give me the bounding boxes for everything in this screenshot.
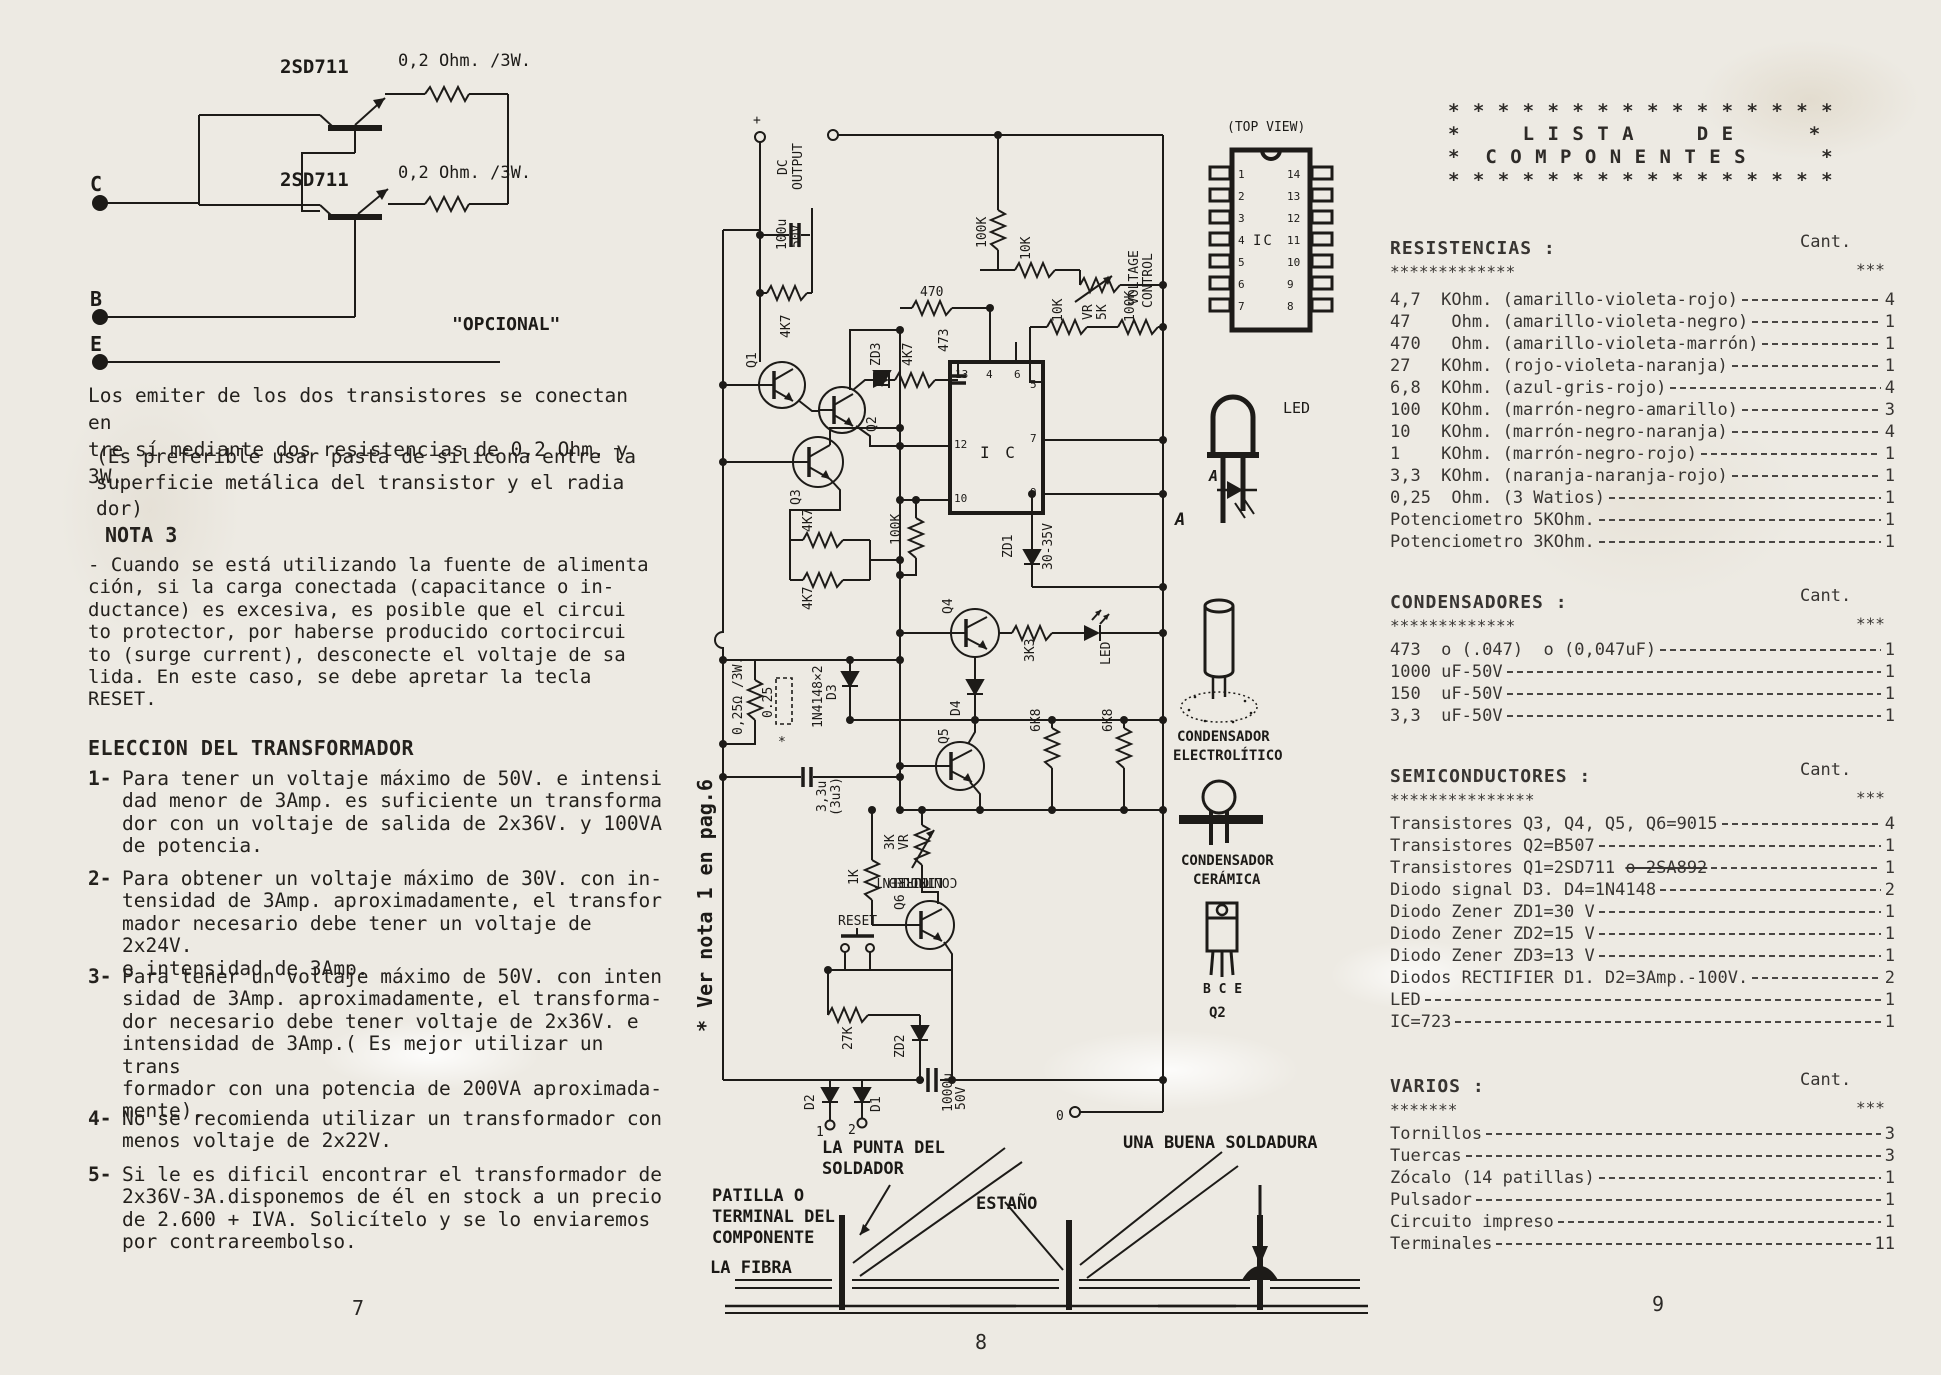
leader-dashes <box>1425 999 1881 1001</box>
resistor-10k-label: 10K <box>1019 236 1034 260</box>
cant-column-label: Cant. <box>1800 586 1851 606</box>
transistor-bottom-label: 2SD711 <box>280 169 349 191</box>
component-pictograms: (TOP VIEW) 1 2 3 4 5 6 7 14 13 12 11 10 <box>1165 85 1380 1045</box>
item-qty: 1 <box>1885 706 1895 726</box>
item-label: Zócalo (14 patillas) <box>1390 1168 1595 1188</box>
item-qty: 1 <box>1885 946 1895 966</box>
item-qty: 1 <box>1885 684 1895 704</box>
cap-50v-label: 50V <box>789 224 804 248</box>
leader-dashes <box>1609 497 1881 499</box>
item-qty: 4 <box>1885 814 1895 834</box>
semiconductor-item-q1: Transistores Q1=2SD711 o 2SA8921 <box>1390 858 1895 878</box>
electrolytic-cap-drawing <box>1181 600 1257 723</box>
d4-label: D4 <box>949 700 964 716</box>
leader-dashes <box>1670 387 1880 389</box>
semiconductor-item: Diodo Zener ZD2=15 V1 <box>1390 924 1895 944</box>
resistor-6k8-b-label: 6K8 <box>1101 709 1116 732</box>
item-label: Diodo Zener ZD3=13 V <box>1390 946 1595 966</box>
zd1-voltage-label: 30-35V <box>1041 523 1056 570</box>
led-label: LED <box>1099 641 1114 665</box>
ic-pin-12: 12 <box>954 438 967 451</box>
leader-dashes <box>1701 453 1881 455</box>
ic-pin-10: 10 <box>954 492 967 505</box>
leader-dashes <box>1599 541 1881 543</box>
soldering-diagram-3 <box>1158 1185 1368 1313</box>
item-qty: 1 <box>1885 356 1895 376</box>
d2-label: D2 <box>803 1094 818 1110</box>
section-underline: ************* <box>1390 262 1515 281</box>
dip-ic-label: IC <box>1253 233 1274 249</box>
ic-pin-7: 7 <box>1030 432 1037 445</box>
varios-item: Zócalo (14 patillas)1 <box>1390 1168 1895 1188</box>
varios-item: Tuercas3 <box>1390 1146 1895 1166</box>
ceramic-cap-drawing <box>1179 781 1263 845</box>
section-title-condensadores: CONDENSADORES : <box>1390 592 1568 613</box>
led-symbol-anode-label: A <box>1208 467 1218 485</box>
cant-column-label: Cant. <box>1800 760 1851 780</box>
voltage-control-label: CONTROL <box>1141 253 1156 308</box>
item-label: 473 o (.047) o (0,047uF) <box>1390 640 1656 660</box>
item-label: 1000 uF-50V <box>1390 662 1503 682</box>
resistor-item: Potenciometro 5KOhm.1 <box>1390 510 1895 530</box>
leader-dashes <box>1455 1021 1880 1023</box>
resistor-item: 4,7 KOhm. (amarillo-violeta-rojo)4 <box>1390 290 1895 310</box>
resistor-025-label: 0,25Ω /3W. <box>731 657 746 735</box>
leader-dashes <box>1558 1221 1881 1223</box>
cap-1000u-50v-label: 50V <box>954 1086 969 1110</box>
item-qty: 2 <box>1885 880 1895 900</box>
vr-5k-label: 5K <box>1095 304 1110 320</box>
item-label: Pulsador <box>1390 1190 1472 1210</box>
leader-dashes <box>1599 845 1881 847</box>
item-label: Transistores Q1=2SD711 <box>1390 858 1625 878</box>
resistor-item: 470 Ohm. (amarillo-violeta-marrón)1 <box>1390 334 1895 354</box>
leader-dashes <box>1732 431 1881 433</box>
semiconductor-item: Diodos RECTIFIER D1. D2=3Amp.-100V.2 <box>1390 968 1895 988</box>
item-label: Diodo signal D3. D4=1N4148 <box>1390 880 1656 900</box>
item-label: 150 uF-50V <box>1390 684 1503 704</box>
cant-stars: *** <box>1856 788 1885 807</box>
resistor-100k-label: 100K <box>975 217 990 248</box>
d3-label: D3 <box>825 684 840 700</box>
resistor-6k8-a-label: 6K8 <box>1029 709 1044 732</box>
ic-pin-6: 6 <box>1014 368 1021 381</box>
item-number: 5- <box>88 1164 122 1254</box>
cap-3u3-label: (3u3) <box>829 777 844 816</box>
zd1-label: ZD1 <box>1001 535 1016 558</box>
dip-pin-1: 1 <box>1238 168 1245 181</box>
circuit-wires <box>92 87 508 370</box>
item-label: 470 Ohm. (amarillo-violeta-marrón) <box>1390 334 1758 354</box>
plus-terminal-label: + <box>753 113 761 128</box>
leader-dashes <box>1722 823 1881 825</box>
leader-dashes <box>1507 715 1881 717</box>
transistor-top-label: 2SD711 <box>280 56 349 78</box>
ceramic-label-2: CERÁMICA <box>1193 871 1261 888</box>
terminal-0-label: 0 <box>1056 1109 1064 1124</box>
resistor-item: 10 KOhm. (marrón-negro-naranja)4 <box>1390 422 1895 442</box>
resistor-top-label: 0,2 Ohm. /3W. <box>398 51 531 71</box>
item-label: Diodo Zener ZD1=30 V <box>1390 902 1595 922</box>
to220-q2-label: Q2 <box>1209 1005 1226 1021</box>
item-qty: 1 <box>1885 510 1895 530</box>
zd3-label: ZD3 <box>869 343 884 366</box>
resistor-100k-b-label: 100K <box>1123 291 1138 322</box>
resistor-025b-label: 0.25 <box>761 687 776 718</box>
terminal-b-label: B <box>90 287 102 311</box>
reset-label: RESET <box>838 914 877 929</box>
electrolytic-label-2: ELECTROLÍTICO <box>1173 747 1283 764</box>
item-label: 6,8 KOhm. (azul-gris-rojo) <box>1390 378 1666 398</box>
semiconductor-item: Transistores Q2=B5071 <box>1390 836 1895 856</box>
item-label: 10 KOhm. (marrón-negro-naranja) <box>1390 422 1728 442</box>
item-qty: 3 <box>1885 1146 1895 1166</box>
item-label: 1 KOhm. (marrón-negro-rojo) <box>1390 444 1697 464</box>
dip-pin-3: 3 <box>1238 212 1245 225</box>
item-label: 27 KOhm. (rojo-violeta-naranja) <box>1390 356 1728 376</box>
resistor-item: 47 Ohm. (amarillo-violeta-negro)1 <box>1390 312 1895 332</box>
item-qty: 1 <box>1885 1212 1895 1232</box>
cap-3u3-label: 3,3u <box>815 781 830 812</box>
page-number-9: 9 <box>1652 1292 1664 1316</box>
resistor-item: 0,25 Ohm. (3 Watios)1 <box>1390 488 1895 508</box>
resistor-bottom-label: 0,2 Ohm. /3W. <box>398 163 531 183</box>
ic-pin-5: 5 <box>1030 378 1037 391</box>
top-view-label: (TOP VIEW) <box>1227 120 1305 135</box>
varios-item: Pulsador1 <box>1390 1190 1895 1210</box>
capacitor-item: 1000 uF-50V1 <box>1390 662 1895 682</box>
item-number: 1- <box>88 768 122 858</box>
item-qty: 1 <box>1885 662 1895 682</box>
dip-pin-12: 12 <box>1287 212 1300 225</box>
dc-output-label: DC <box>776 159 791 175</box>
led-anode-label: A <box>1174 510 1185 530</box>
dip14-ic-drawing: 1 2 3 4 5 6 7 14 13 12 11 10 9 8 IC <box>1210 150 1332 330</box>
item-label: Transistores Q3, Q4, Q5, Q6=9015 <box>1390 814 1718 834</box>
resistor-item: 3,3 KOhm. (naranja-naranja-rojo)1 <box>1390 466 1895 486</box>
item-label: 3,3 KOhm. (naranja-naranja-rojo) <box>1390 466 1728 486</box>
dip-pin-4: 4 <box>1238 234 1245 247</box>
item-qty: 3 <box>1885 400 1895 420</box>
cant-stars: *** <box>1856 1098 1885 1117</box>
semiconductor-item: Diodo signal D3. D4=1N41482 <box>1390 880 1895 900</box>
main-schematic: + DC OUTPUT 100u 50V 4K7 Q1 Q2 ZD3 4K7 4… <box>560 80 1180 1140</box>
item-qty: 1 <box>1885 488 1895 508</box>
item-label: Potenciometro 3KOhm. <box>1390 532 1595 552</box>
section-underline: ******* <box>1390 1100 1457 1119</box>
to220-transistor-drawing <box>1207 903 1237 977</box>
section-underline: ************* <box>1390 616 1515 635</box>
dip-pin-5: 5 <box>1238 256 1245 269</box>
ic-pin-13: 13 <box>955 368 968 381</box>
item-label: 47 Ohm. (amarillo-violeta-negro) <box>1390 312 1748 332</box>
item-qty: 1 <box>1885 902 1895 922</box>
q1-label: Q1 <box>745 352 760 368</box>
dip-pin-7: 7 <box>1238 300 1245 313</box>
cap-473-label: 473 <box>937 329 952 352</box>
item-number: 2- <box>88 868 122 980</box>
item-label: Diodos RECTIFIER D1. D2=3Amp.-100V. <box>1390 968 1748 988</box>
leader-dashes <box>1752 977 1881 979</box>
q2-label: Q2 <box>865 416 880 432</box>
item-qty: 1 <box>1885 640 1895 660</box>
item-qty: 1 <box>1885 924 1895 944</box>
leader-dashes <box>1660 649 1881 651</box>
section-title-resistencias: RESISTENCIAS : <box>1390 238 1556 259</box>
terminal-e-label: E <box>90 332 102 356</box>
q1-base-bar <box>328 125 382 131</box>
leader-dashes <box>1599 933 1881 935</box>
asterisk-mark: * <box>778 735 786 750</box>
electrolytic-label-1: CONDENSADOR <box>1177 729 1270 745</box>
leader-dashes <box>1742 299 1881 301</box>
resistor-4k7-b-label: 4K7 <box>801 587 816 610</box>
capacitor-item: 150 uF-50V1 <box>1390 684 1895 704</box>
leader-dashes <box>1599 955 1881 957</box>
item-label: Diodo Zener ZD2=15 V <box>1390 924 1595 944</box>
item-qty: 1 <box>1885 1190 1895 1210</box>
q5-label: Q5 <box>937 728 952 744</box>
scanned-manual-page: { "left_column": { "circuit": { "q_top":… <box>0 0 1941 1375</box>
leader-dashes <box>1732 475 1881 477</box>
led-pictogram-label: LED <box>1283 399 1310 417</box>
leader-dashes <box>1752 321 1881 323</box>
item-qty: 1 <box>1885 444 1895 464</box>
dc-output-label: OUTPUT <box>791 143 806 190</box>
resistor-item: Potenciometro 3KOhm.1 <box>1390 532 1895 552</box>
dip-pin-9: 9 <box>1287 278 1294 291</box>
schematic-wires <box>715 130 1167 1130</box>
item-qty: 1 <box>1885 1168 1895 1188</box>
d3-1n4148-label: 1N4148×2 <box>811 665 826 728</box>
dip-pin-10: 10 <box>1287 256 1300 269</box>
semiconductor-item: Diodo Zener ZD1=30 V1 <box>1390 902 1895 922</box>
item-number: 4- <box>88 1108 122 1153</box>
item-label: 0,25 Ohm. (3 Watios) <box>1390 488 1605 508</box>
varios-item: Circuito impreso1 <box>1390 1212 1895 1232</box>
optional-transistor-circuit: C B E 2SD711 2SD711 0,2 Ohm. /3W. 0,2 Oh… <box>80 48 600 378</box>
cap-100u-label: 100u <box>775 219 790 250</box>
item-qty: 4 <box>1885 378 1895 398</box>
struck-alternative: o 2SA892 <box>1625 858 1707 878</box>
resistor-item: 27 KOhm. (rojo-violeta-naranja)1 <box>1390 356 1895 376</box>
resistor-470-label: 470 <box>920 285 943 300</box>
d1-label: D1 <box>869 1096 884 1112</box>
vr-5k-label: VR <box>1081 304 1096 320</box>
dip-pin-14: 14 <box>1287 168 1301 181</box>
terminal-c-dot <box>92 195 108 211</box>
leader-dashes <box>1660 889 1881 891</box>
eleccion-title: ELECCION DEL TRANSFORMADOR <box>88 737 414 759</box>
resistor-27k-label: 27K <box>841 1026 856 1050</box>
nota3-title: NOTA 3 <box>105 524 177 546</box>
resistor-1k-label: 1K <box>847 869 862 885</box>
resistor-item: 100 KOhm. (marrón-negro-amarillo)3 <box>1390 400 1895 420</box>
item-label: Tuercas <box>1390 1146 1462 1166</box>
leader-dashes <box>1711 867 1880 869</box>
varios-item: Tornillos3 <box>1390 1124 1895 1144</box>
item-label: Potenciometro 5KOhm. <box>1390 510 1595 530</box>
soldering-diagrams <box>560 1130 1400 1360</box>
cant-column-label: Cant. <box>1800 232 1851 252</box>
ic-label: I C <box>980 443 1018 462</box>
capacitor-item: 473 o (.047) o (0,047uF)1 <box>1390 640 1895 660</box>
leader-dashes <box>1599 519 1881 521</box>
resistor-4k7-label: 4K7 <box>779 315 794 338</box>
page-number-7: 7 <box>352 1296 364 1320</box>
item-qty: 2 <box>1885 968 1895 988</box>
leader-dashes <box>1742 409 1881 411</box>
cant-stars: *** <box>1856 260 1885 279</box>
semiconductor-item: Transistores Q3, Q4, Q5, Q6=90154 <box>1390 814 1895 834</box>
item-qty: 1 <box>1885 532 1895 552</box>
ic-pin-9: 9 <box>1030 486 1037 499</box>
q6-label: Q6 <box>893 894 908 910</box>
leader-dashes <box>1762 343 1880 345</box>
current-limited-label: CONTROL <box>902 874 957 889</box>
item-label: Transistores Q2=B507 <box>1390 836 1595 856</box>
zd2-label: ZD2 <box>893 1035 908 1058</box>
semiconductor-item: LED1 <box>1390 990 1895 1010</box>
section-title-varios: VARIOS : <box>1390 1076 1485 1097</box>
lista-componentes-header: * * * * * * * * * * * * * * * * * L I S … <box>1448 100 1834 192</box>
semiconductor-item: Diodo Zener ZD3=13 V1 <box>1390 946 1895 966</box>
q4-label: Q4 <box>941 598 956 614</box>
resistor-3k3-label: 3K3 <box>1023 639 1038 662</box>
item-label: LED <box>1390 990 1421 1010</box>
led-drawing <box>1207 397 1259 523</box>
q2-base-bar <box>328 214 382 220</box>
leader-dashes <box>1599 911 1881 913</box>
terminal-b-dot <box>92 309 108 325</box>
dip-pin-6: 6 <box>1238 278 1245 291</box>
dip-pin-8: 8 <box>1287 300 1294 313</box>
leader-dashes <box>1486 1133 1881 1135</box>
item-qty: 3 <box>1885 1124 1895 1144</box>
resistor-4k7-a-label: 4K7 <box>801 509 816 532</box>
vr-3k-label: 3K <box>883 834 898 850</box>
semiconductor-item: IC=7231 <box>1390 1012 1895 1032</box>
capacitor-item: 3,3 uF-50V1 <box>1390 706 1895 726</box>
item-label: IC=723 <box>1390 1012 1451 1032</box>
resistor-item: 1 KOhm. (marrón-negro-rojo)1 <box>1390 444 1895 464</box>
section-title-semiconductores: SEMICONDUCTORES : <box>1390 766 1591 787</box>
item-label: Tornillos <box>1390 1124 1482 1144</box>
item-qty: 1 <box>1885 858 1895 878</box>
dip-pin-13: 13 <box>1287 190 1300 203</box>
item-label: 4,7 KOhm. (amarillo-violeta-rojo) <box>1390 290 1738 310</box>
section-underline: *************** <box>1390 790 1535 809</box>
ic-pin-4: 4 <box>986 368 993 381</box>
item-qty: 1 <box>1885 1012 1895 1032</box>
leader-dashes <box>1507 671 1881 673</box>
leader-dashes <box>1732 365 1881 367</box>
item-number: 3- <box>88 966 122 1123</box>
varios-item: Terminales11 <box>1390 1234 1895 1254</box>
resistor-4k7-zd3-label: 4K7 <box>901 343 916 366</box>
item-qty: 1 <box>1885 990 1895 1010</box>
item-label: 100 KOhm. (marrón-negro-amarillo) <box>1390 400 1738 420</box>
item-qty: 4 <box>1885 422 1895 442</box>
ver-nota-annotation: * Ver nota 1 en pag.6 <box>693 779 717 1032</box>
ceramic-label-1: CONDENSADOR <box>1181 853 1274 869</box>
item-qty: 1 <box>1885 466 1895 486</box>
resistor-10k-b-label: 10K <box>1051 298 1066 322</box>
resistor-item: 6,8 KOhm. (azul-gris-rojo)4 <box>1390 378 1895 398</box>
q3-label: Q3 <box>789 489 804 505</box>
terminal-e-dot <box>92 354 108 370</box>
vr-3k-label: VR <box>897 834 912 850</box>
dip-pin-2: 2 <box>1238 190 1245 203</box>
to220-bce-label: B C E <box>1203 982 1242 997</box>
terminal-c-label: C <box>90 172 102 196</box>
item-qty: 1 <box>1885 836 1895 856</box>
item-label: Terminales <box>1390 1234 1492 1254</box>
item-qty: 11 <box>1875 1234 1895 1254</box>
opcional-caption: "OPCIONAL" <box>452 314 560 335</box>
leader-dashes <box>1466 1155 1881 1157</box>
item-qty: 1 <box>1885 312 1895 332</box>
dip-pin-11: 11 <box>1287 234 1300 247</box>
item-qty: 4 <box>1885 290 1895 310</box>
leader-dashes <box>1496 1243 1870 1245</box>
item-qty: 1 <box>1885 334 1895 354</box>
item-label: 3,3 uF-50V <box>1390 706 1503 726</box>
leader-dashes <box>1599 1177 1881 1179</box>
resistor-100k-c-label: 100K <box>889 514 904 545</box>
leader-dashes <box>1507 693 1881 695</box>
leader-dashes <box>1476 1199 1881 1201</box>
item-label: Circuito impreso <box>1390 1212 1554 1232</box>
cant-column-label: Cant. <box>1800 1070 1851 1090</box>
cant-stars: *** <box>1856 614 1885 633</box>
